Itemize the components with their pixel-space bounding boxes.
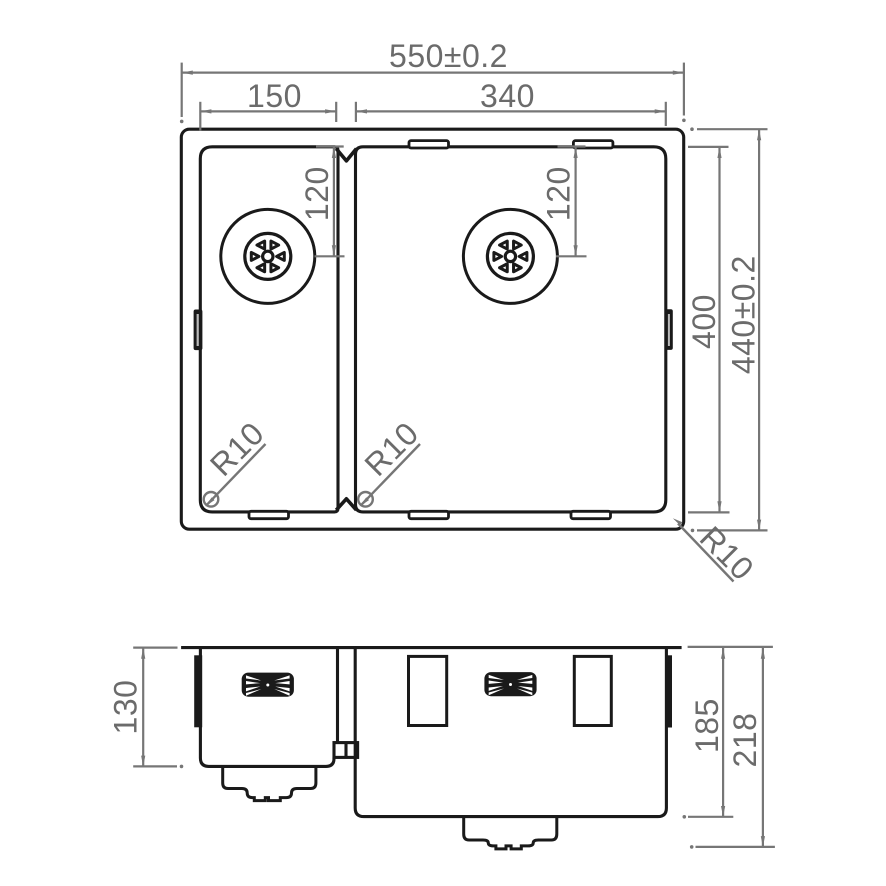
svg-text:120: 120	[299, 166, 335, 221]
svg-text:550±0.2: 550±0.2	[389, 38, 508, 74]
svg-text:340: 340	[480, 78, 535, 114]
svg-text:440±0.2: 440±0.2	[726, 255, 762, 374]
svg-text:400: 400	[686, 294, 722, 349]
svg-text:150: 150	[247, 78, 302, 114]
svg-text:130: 130	[107, 680, 143, 735]
svg-text:120: 120	[541, 166, 577, 221]
svg-text:185: 185	[689, 698, 725, 753]
svg-text:218: 218	[727, 713, 763, 768]
